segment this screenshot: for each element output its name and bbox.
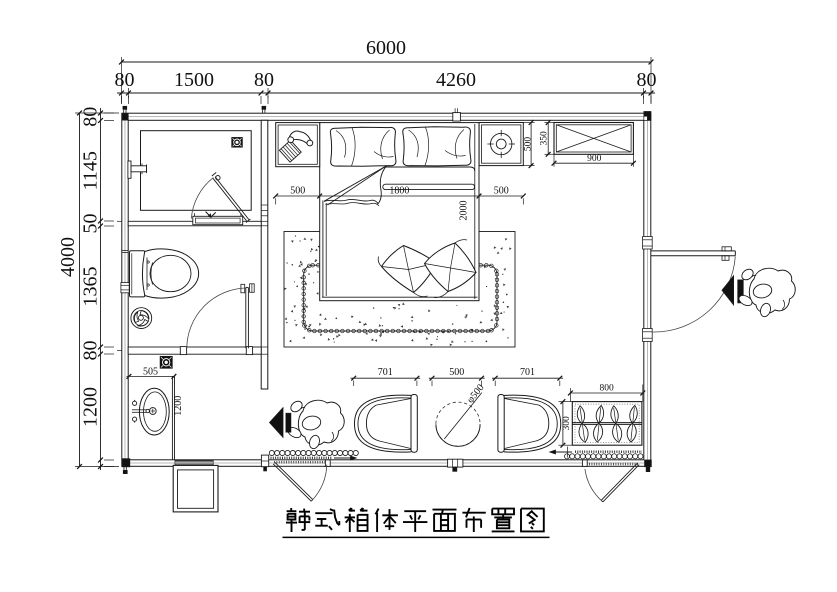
svg-text:50: 50 [80, 214, 102, 234]
svg-text:300: 300 [562, 416, 572, 431]
svg-text:1365: 1365 [80, 267, 102, 307]
svg-text:80: 80 [254, 69, 274, 91]
svg-text:1200: 1200 [80, 387, 102, 427]
svg-text:4260: 4260 [436, 69, 476, 91]
svg-text:2000: 2000 [459, 201, 470, 221]
svg-text:80: 80 [115, 69, 135, 91]
svg-text:80: 80 [80, 107, 102, 127]
svg-text:1200: 1200 [173, 396, 184, 416]
svg-text:900: 900 [587, 154, 602, 164]
svg-text:80: 80 [80, 341, 102, 361]
svg-text:500: 500 [290, 186, 305, 197]
svg-text:4000: 4000 [57, 237, 79, 277]
svg-text:505: 505 [143, 366, 158, 377]
svg-text:1145: 1145 [80, 151, 102, 190]
svg-text:500: 500 [523, 137, 533, 152]
svg-text:1800: 1800 [389, 186, 409, 197]
svg-text:6000: 6000 [366, 37, 406, 59]
svg-text:80: 80 [637, 69, 657, 91]
svg-text:800: 800 [599, 383, 614, 393]
svg-text:1500: 1500 [174, 69, 214, 91]
svg-text:500: 500 [494, 186, 509, 197]
svg-text:500: 500 [449, 367, 464, 378]
svg-text:701: 701 [520, 367, 535, 378]
svg-text:350: 350 [539, 131, 549, 146]
svg-text:701: 701 [378, 367, 393, 378]
